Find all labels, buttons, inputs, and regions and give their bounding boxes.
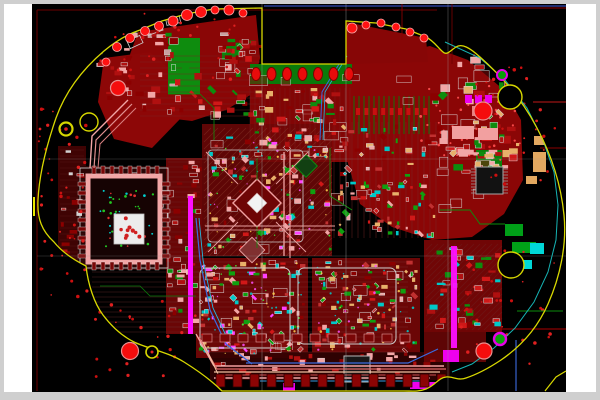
component-cluster (342, 142, 348, 146)
via-sparkle (331, 348, 333, 350)
margin-vias (535, 128, 537, 130)
edge-pad (196, 7, 207, 18)
thermal-pad-vias (131, 228, 135, 232)
component-cluster (385, 147, 390, 152)
qfp-vias (102, 210, 105, 213)
component-cluster (490, 122, 498, 129)
via-sparkle (348, 320, 350, 322)
salmon-component (478, 128, 498, 140)
component-cluster (256, 91, 263, 94)
margin-vias (539, 179, 541, 181)
margin-vias (492, 78, 495, 81)
component-cluster (218, 245, 221, 249)
component-cluster (392, 192, 399, 195)
component-cluster (370, 298, 376, 301)
component-cluster (445, 281, 451, 283)
thermal-vias (428, 88, 430, 90)
component-cluster (351, 272, 357, 276)
qfp-pins (78, 218, 86, 222)
via-sparkle (217, 296, 218, 297)
qfp-pins (162, 218, 170, 222)
component-cluster (177, 183, 182, 185)
component-cluster (207, 243, 211, 246)
comb-pads (415, 108, 419, 115)
margin-vias (59, 231, 61, 233)
screenshot-frame (0, 0, 600, 400)
connector-fingers (284, 374, 293, 387)
notch-pad-row (314, 68, 323, 81)
component-cluster (294, 154, 301, 157)
component-cluster (366, 167, 369, 170)
via-sparkle (242, 176, 244, 178)
margin-vias (119, 309, 121, 311)
margin-vias (539, 108, 542, 111)
qfp-pins (78, 236, 86, 240)
via-sparkle (317, 349, 319, 351)
component-cluster (61, 222, 64, 227)
component-cluster (205, 309, 209, 314)
margin-vias (476, 95, 478, 97)
component-cluster (255, 152, 261, 156)
margin-vias (489, 300, 492, 303)
qfp-vias (147, 243, 150, 246)
component-cluster (126, 56, 132, 58)
component-cluster (474, 140, 478, 145)
component-cluster (158, 72, 162, 77)
component-cluster (405, 174, 410, 177)
component-cluster (362, 324, 369, 327)
via-sparkle (314, 149, 316, 151)
thermal-vias (435, 105, 437, 107)
component-cluster (285, 142, 290, 147)
component-cluster (495, 253, 500, 258)
thermal-vias (514, 139, 516, 141)
component-cluster (406, 198, 409, 202)
component-cluster (288, 106, 293, 109)
component-cluster (235, 300, 239, 304)
component-cluster (481, 257, 489, 260)
component-cluster (473, 121, 478, 124)
via-sparkle (265, 290, 266, 291)
component-cluster (66, 150, 71, 153)
margin-vias (179, 21, 182, 24)
qfp-pins (110, 262, 114, 270)
margin-vias (168, 315, 171, 318)
keyed-via (497, 70, 507, 80)
component-cluster (170, 52, 174, 58)
component-cluster (318, 303, 321, 307)
via-sparkle (341, 277, 343, 279)
component-cluster (377, 324, 381, 329)
component-cluster (368, 220, 370, 223)
via-sparkle (377, 312, 380, 315)
component-cluster (495, 152, 501, 156)
footprint-outlines (474, 71, 489, 82)
margin-vias (166, 335, 169, 338)
pad-row (238, 334, 248, 342)
qfp-pins (78, 200, 86, 204)
component-cluster (326, 328, 330, 333)
component-cluster (344, 292, 351, 296)
via-sparkle (300, 294, 302, 296)
via-sparkle (328, 235, 330, 237)
component-cluster (459, 318, 466, 324)
margin-vias (201, 334, 203, 336)
component-cluster (287, 310, 292, 314)
margin-vias (217, 57, 219, 59)
component-cluster (388, 231, 393, 234)
via-sparkle (272, 297, 273, 298)
component-cluster (307, 146, 312, 148)
margin-vias (166, 57, 169, 60)
component-cluster (437, 126, 442, 131)
component-cluster (271, 142, 277, 145)
via-sparkle (250, 231, 252, 233)
via-sparkle (299, 248, 301, 250)
component-cluster (215, 145, 218, 147)
component-cluster (225, 55, 232, 59)
edge-pad (347, 23, 357, 33)
via-sparkle (212, 295, 214, 297)
via-sparkle (214, 247, 216, 249)
margin-vias (69, 237, 71, 239)
margin-vias (42, 268, 44, 270)
margin-vias (38, 140, 40, 142)
component-cluster (250, 47, 255, 49)
margin-vias (39, 128, 42, 131)
margin-vias (228, 33, 230, 35)
pcb-layout-canvas (0, 0, 600, 400)
comb-pads (373, 108, 377, 115)
component-cluster (168, 110, 172, 115)
component-cluster (375, 223, 380, 227)
component-cluster (239, 176, 242, 180)
component-cluster (440, 294, 443, 296)
margin-vias (81, 239, 84, 242)
component-cluster (107, 96, 112, 100)
component-cluster (192, 319, 199, 323)
qfp-vias (152, 193, 154, 195)
pad-row (202, 334, 212, 342)
component-cluster (509, 154, 517, 161)
via-sparkle (255, 147, 257, 149)
qfp-vias (148, 225, 150, 227)
component-cluster (404, 353, 408, 356)
margin-vias (60, 192, 63, 195)
component-cluster (167, 258, 171, 262)
qfp-vias (109, 232, 111, 234)
component-cluster (224, 278, 229, 281)
component-cluster (250, 51, 256, 54)
footprint-outlines (450, 199, 461, 207)
pad-row (292, 334, 302, 342)
comb-pads (356, 108, 360, 115)
component-cluster (243, 233, 249, 237)
qfp-pins (128, 262, 132, 270)
component-cluster (377, 198, 380, 200)
component-cluster (335, 272, 338, 276)
margin-vias (465, 308, 468, 311)
component-cluster (291, 274, 296, 278)
component-cluster (279, 173, 283, 176)
margin-vias (535, 120, 538, 123)
via-sparkle (214, 204, 215, 205)
component-cluster (119, 68, 126, 72)
qfp-vias (151, 233, 153, 235)
margin-vias (50, 179, 53, 182)
via-sparkle (373, 291, 376, 294)
component-cluster (414, 270, 417, 273)
component-cluster (484, 154, 491, 157)
via-sparkle (311, 204, 313, 206)
margin-vias (542, 135, 545, 138)
margin-vias (117, 69, 120, 72)
component-cluster (494, 322, 501, 327)
margin-vias (475, 83, 478, 86)
component-cluster (368, 317, 372, 319)
margin-vias (70, 280, 73, 283)
component-cluster (433, 215, 435, 218)
component-cluster (375, 291, 380, 294)
component-cluster (413, 127, 417, 130)
component-cluster (189, 161, 195, 164)
component-cluster (198, 99, 203, 104)
component-cluster (378, 303, 384, 307)
component-cluster (143, 105, 147, 111)
hole-center (151, 351, 154, 354)
margin-vias (189, 34, 192, 37)
component-cluster (396, 138, 398, 143)
component-cluster (399, 182, 404, 185)
thermal-vias (475, 128, 477, 130)
component-cluster (330, 277, 336, 281)
component-cluster (368, 190, 372, 195)
component-cluster (191, 183, 196, 188)
margin-vias (83, 161, 86, 164)
component-cluster (318, 327, 322, 331)
component-cluster (178, 298, 184, 302)
hole-center (64, 127, 68, 131)
via-sparkle (234, 168, 236, 170)
via-sparkle (336, 308, 338, 310)
component-cluster (174, 209, 181, 214)
component-cluster (361, 128, 367, 132)
via-sparkle (368, 270, 370, 272)
mounting-hole (498, 85, 522, 109)
component-cluster (196, 209, 201, 213)
component-cluster (256, 118, 264, 123)
component-cluster (223, 45, 227, 49)
via-sparkle (209, 212, 211, 214)
via-sparkle (210, 204, 212, 206)
component-cluster (213, 102, 222, 106)
thermal-pad-vias (124, 234, 128, 238)
component-cluster (493, 292, 500, 297)
component-cluster (350, 182, 356, 185)
via-sparkle (308, 228, 310, 230)
component-cluster (269, 260, 276, 264)
component-cluster (409, 356, 417, 358)
component-cluster (437, 251, 443, 255)
component-cluster (240, 262, 246, 266)
margin-vias (225, 66, 228, 69)
via-sparkle (338, 331, 340, 333)
footprint-outlines (397, 76, 411, 83)
margin-vias (520, 66, 523, 69)
edge-pad (239, 9, 247, 17)
component-cluster (422, 147, 425, 152)
component-cluster (302, 303, 305, 306)
component-cluster (387, 352, 394, 355)
component-cluster (326, 113, 335, 115)
component-cluster (295, 135, 301, 140)
component-cluster (253, 273, 259, 276)
margin-vias (543, 149, 545, 151)
thermal-pad-vias (124, 216, 128, 220)
via-sparkle (249, 274, 251, 276)
component-cluster (408, 163, 414, 165)
component-cluster (292, 174, 298, 178)
margin-vias (94, 318, 97, 321)
via-sparkle (262, 299, 264, 301)
component-cluster (178, 309, 182, 313)
margin-vias (74, 238, 76, 240)
qfp-pins (146, 262, 150, 270)
footprint-outlines (216, 72, 224, 79)
component-cluster (220, 283, 224, 285)
component-cluster (259, 140, 267, 146)
component-cluster (228, 330, 233, 334)
component-cluster (248, 112, 253, 117)
comb-pads (406, 108, 410, 115)
component-cluster (338, 339, 341, 344)
via-sparkle (375, 265, 377, 267)
footprint-outlines (437, 169, 448, 176)
thermal-vias (439, 110, 441, 112)
margin-vias (460, 325, 463, 328)
via-sparkle (409, 318, 410, 319)
margin-vias (77, 166, 80, 169)
component-cluster (339, 146, 342, 148)
margin-vias (95, 358, 98, 361)
component-cluster (177, 280, 185, 285)
component-cluster (291, 326, 294, 330)
component-cluster (388, 222, 392, 225)
component-cluster (285, 293, 288, 296)
qfp-vias (112, 198, 114, 200)
component-cluster (174, 258, 181, 262)
margin-vias (123, 33, 125, 35)
component-cluster (215, 363, 222, 366)
component-cluster (316, 153, 319, 156)
via-sparkle (277, 156, 279, 158)
component-cluster (406, 148, 412, 152)
via-sparkle (257, 150, 259, 152)
margin-vias (169, 348, 172, 351)
component-cluster (465, 304, 470, 306)
component-cluster (475, 286, 482, 291)
margin-vias (513, 68, 517, 72)
component-cluster (256, 45, 261, 48)
qfp-vias (143, 194, 146, 197)
comb-pads (398, 108, 402, 115)
margin-vias (42, 108, 44, 110)
margin-vias (177, 29, 180, 32)
footprint-outlines (439, 205, 451, 213)
margin-vias (110, 303, 113, 306)
component-cluster (453, 164, 463, 170)
component-cluster (251, 41, 257, 45)
component-cluster (111, 66, 115, 69)
component-cluster (419, 183, 421, 187)
connector-fingers (403, 374, 412, 387)
component-cluster (240, 306, 243, 309)
component-cluster (285, 189, 287, 191)
component-cluster (357, 319, 362, 323)
thermal-vias (437, 144, 440, 147)
via-sparkle (400, 311, 401, 312)
qfp-pins (162, 182, 170, 186)
component-cluster (232, 157, 235, 160)
component-cluster (227, 207, 232, 211)
component-cluster (179, 239, 182, 243)
margin-vias (144, 13, 146, 15)
via-sparkle (383, 270, 385, 272)
qfp-vias (109, 201, 112, 204)
via-sparkle (336, 321, 338, 323)
via-sparkle (242, 323, 244, 325)
margin-vias (75, 136, 78, 139)
component-cluster (258, 231, 264, 235)
component-cluster (329, 248, 332, 251)
component-cluster (332, 92, 341, 96)
margin-vias (522, 281, 524, 283)
component-cluster (228, 323, 230, 326)
margin-vias (39, 135, 41, 137)
component-cluster (318, 358, 325, 363)
component-cluster (127, 91, 132, 96)
qfp-pins (92, 262, 96, 270)
qfp-vias (124, 195, 127, 198)
qfp-vias (133, 194, 136, 197)
via-sparkle (407, 330, 409, 332)
component-cluster (124, 48, 130, 51)
margin-vias (472, 268, 475, 271)
component-cluster (425, 140, 432, 145)
qfp-vias (137, 206, 139, 208)
component-cluster (250, 350, 256, 355)
magenta-pad (465, 95, 472, 103)
qfp-vias (119, 211, 120, 212)
via-sparkle (276, 144, 277, 145)
tan-component (533, 152, 546, 172)
component-cluster (413, 205, 417, 210)
component-cluster (164, 50, 171, 55)
component-cluster (266, 293, 269, 297)
component-cluster (230, 234, 235, 238)
right-margin (566, 4, 596, 392)
margin-vias (114, 36, 117, 39)
qfp-vias (115, 211, 117, 213)
component-cluster (464, 86, 473, 93)
qfp-vias (109, 237, 111, 239)
component-cluster (302, 128, 307, 131)
via-sparkle (242, 344, 245, 347)
component-cluster (213, 286, 217, 289)
margin-vias (494, 113, 496, 115)
component-cluster (364, 182, 366, 186)
component-cluster (366, 209, 372, 212)
